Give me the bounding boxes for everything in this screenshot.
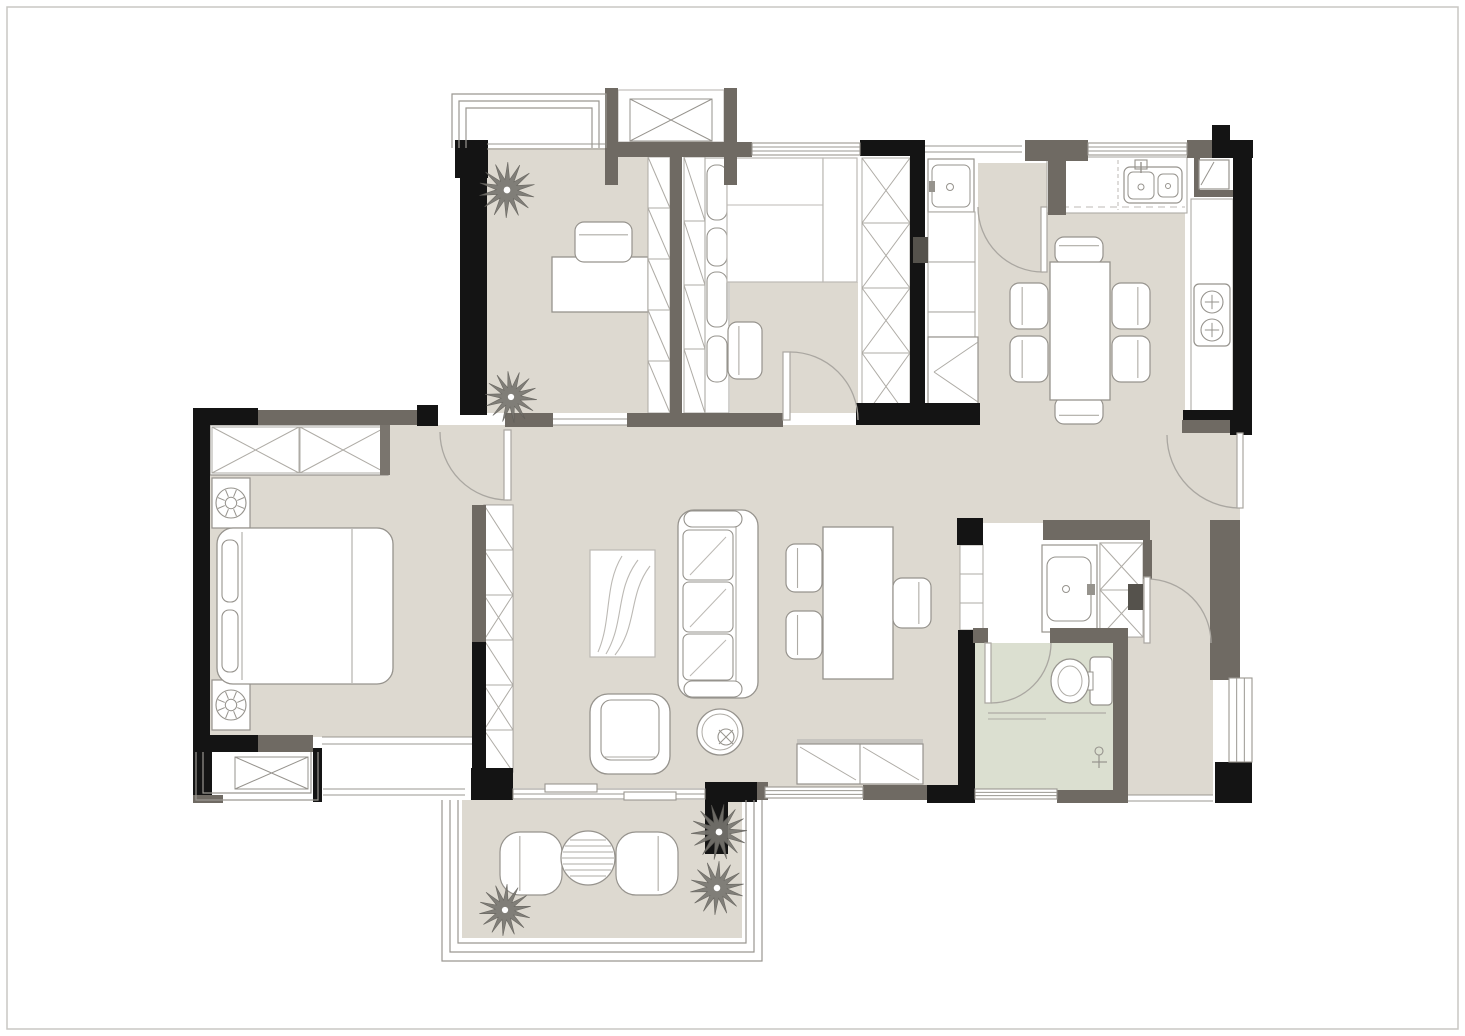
wall-black [417,405,438,426]
wall-taupe [1143,540,1152,579]
study-chair [575,222,632,262]
balcony-chair [616,832,678,895]
potted-plant [508,394,514,400]
wall-black [193,425,210,745]
wall-taupe [1182,420,1230,433]
master-bedroom-furniture [210,425,393,730]
table-lamp [216,488,246,518]
wall-black [471,768,513,800]
laundry-fixtures [928,159,978,407]
door-leaf [783,352,790,420]
master-bed [217,528,393,684]
study-desk [552,257,648,312]
dining-chair [1010,283,1048,329]
wall-black [910,156,925,413]
floor-plan-page [0,0,1465,1036]
dining-chair [1055,397,1103,424]
pillow [222,610,238,672]
wall-black [1215,762,1252,803]
wall-taupe [1210,520,1240,680]
wall-taupe [1043,520,1150,540]
floor-plan-drawing [0,0,1465,1036]
fridge-alcove-wall [1194,190,1236,197]
ac-platform [618,90,724,142]
wall-taupe [1113,643,1128,795]
door-leaf [985,643,991,703]
wall-taupe [472,505,486,642]
sofa-arm [684,511,742,527]
wall-taupe [1025,140,1088,161]
sink-basin [1128,172,1154,199]
potted-plant [504,187,511,194]
wall-taupe [1048,158,1066,215]
bedroom2-desk-item [707,228,727,266]
hall-floor [958,425,1240,523]
bedroom2-chair [728,322,762,379]
wall-black [856,403,980,425]
vanity-column-cell [960,574,983,603]
laundry-cabinet [928,262,975,312]
wall-black [860,140,925,156]
wall-black [1212,125,1230,158]
wall-taupe [258,410,417,425]
balcony-chair [500,832,562,895]
door-leaf [1144,577,1150,643]
window [1088,143,1187,155]
dining-table [1050,262,1110,400]
rug [590,550,655,657]
pillow [222,540,238,602]
balcony-slider-panel [545,784,597,792]
door-leaf [1041,207,1047,272]
potted-plant [714,885,720,891]
potted-plant [502,907,508,913]
wall-black [193,408,258,425]
sink-basin [1158,174,1178,197]
door-leaf [1237,433,1243,508]
wall-taupe [863,785,927,800]
table-chair [786,544,822,592]
wall-taupe [627,413,783,427]
balcony-slider-panel [624,792,676,800]
sofa-arm [684,681,742,697]
wall-black [705,782,757,802]
vanity-faucet [1087,584,1095,595]
dining-chair [1010,336,1048,382]
wall-black [957,518,983,545]
window [765,787,863,798]
wall-taupe [973,628,988,643]
wall-heater-box [1128,584,1143,610]
potted-plant [716,829,723,836]
bedroom2-desk-item [707,272,727,327]
window [975,789,1057,799]
wall-mounted [913,237,928,263]
fridge [1199,160,1229,189]
wall-switch-box [913,237,928,263]
dining-chair [1055,237,1103,264]
wall-black [1233,157,1252,413]
wall-taupe [1057,790,1128,803]
table-chair [893,578,931,628]
door-leaf [504,430,511,500]
bedroom2-bed [727,158,823,282]
bedroom2-desk-item [707,336,727,382]
wall-taupe [605,88,618,185]
wall-taupe [670,143,682,413]
bedroom2-bed-shelf [823,158,857,282]
wall-black [193,735,258,752]
table-chair [786,611,822,659]
laundry-faucet [929,181,935,192]
window [752,143,860,155]
wall-black [958,630,975,803]
armchair-cushion [601,700,659,760]
balcony-furniture [500,831,678,895]
wall-black [472,640,486,772]
table-lamp [216,690,246,720]
wall-taupe [1050,628,1128,643]
vanity-column-cell [960,545,983,574]
work-table [823,527,893,679]
wall-taupe [605,142,752,157]
window [1229,678,1252,762]
wall-taupe [380,425,390,475]
wall-taupe [1187,140,1212,158]
laundry-cabinet [928,312,975,337]
wall-black [1230,140,1253,158]
vanity-column-cell [960,603,983,630]
laundry-sink-basin [932,165,970,207]
dining-chair [1112,283,1150,329]
wall-taupe [193,795,223,803]
dining-chair [1112,336,1150,382]
wall-taupe [258,735,313,752]
wall-taupe [724,88,737,185]
laundry-cabinet [928,212,975,262]
